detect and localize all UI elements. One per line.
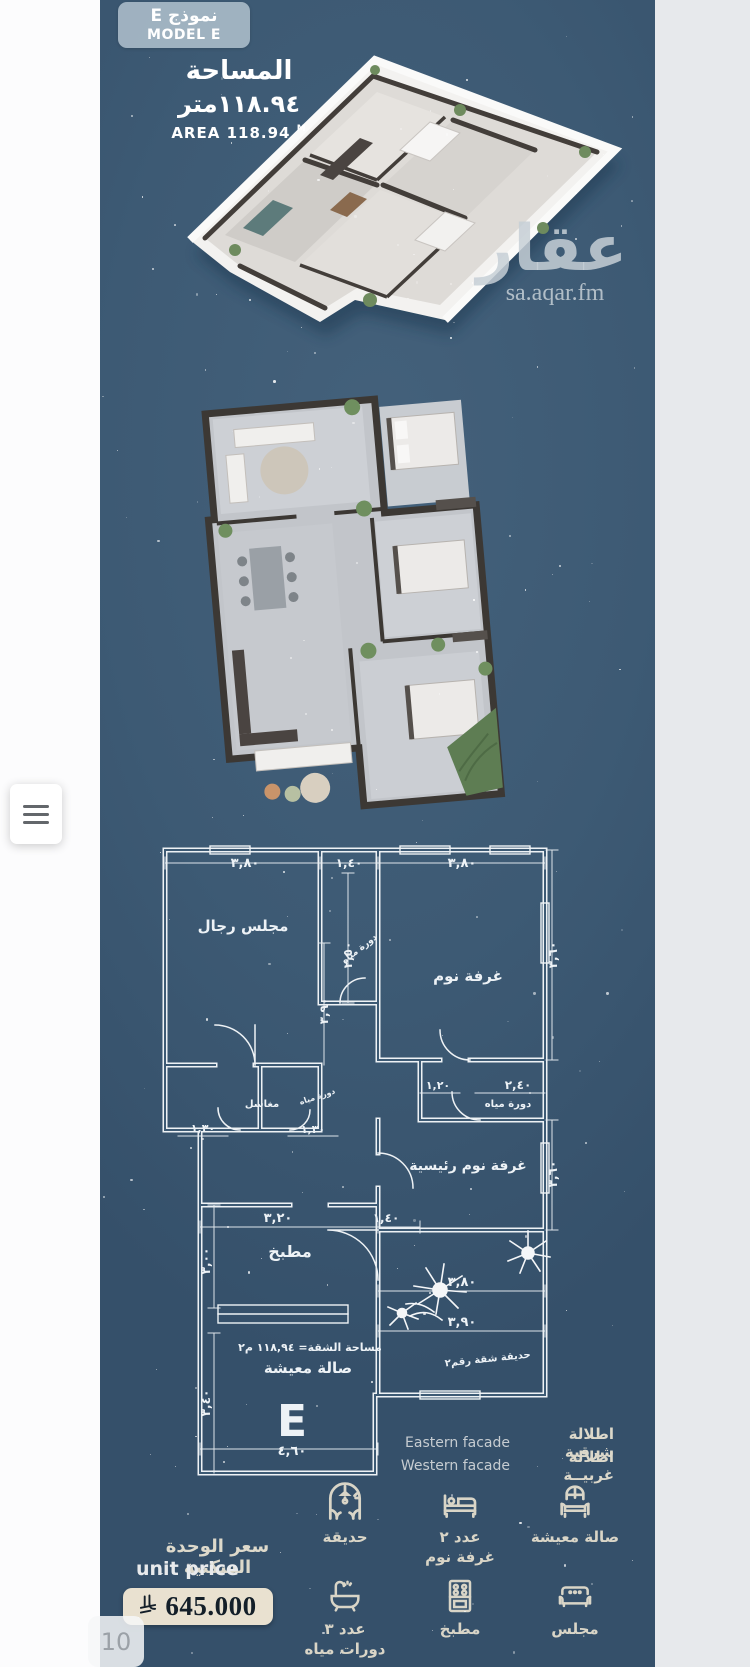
svg-text:٣,٦٠: ٣,٦٠ xyxy=(546,1161,560,1188)
area-label-ar: المساحة xyxy=(130,56,348,86)
svg-text:٣,٠٠: ٣,٠٠ xyxy=(199,1248,213,1275)
feature-label: مجلس xyxy=(517,1620,633,1640)
area-value-ar: ١١٨.٩٤متر xyxy=(130,90,348,118)
living-room-icon xyxy=(555,1509,595,1528)
bathtub-icon xyxy=(324,1601,366,1620)
facade-block: Eastern facade اطلالة شرقية Western faca… xyxy=(398,1431,614,1477)
svg-text:غرفة نوم رئيسية: غرفة نوم رئيسية xyxy=(409,1158,526,1174)
facade-eastern-en: Eastern facade xyxy=(405,1435,510,1451)
svg-text:مجلس رجال: مجلس رجال xyxy=(198,917,289,935)
svg-text:٣,٩٠: ٣,٩٠ xyxy=(317,998,331,1025)
feature-label: صالة معيشة xyxy=(517,1528,633,1548)
saudi-riyal-icon xyxy=(139,1594,158,1620)
svg-text:٣,٢٠: ٣,٢٠ xyxy=(264,1211,293,1226)
feature-kitchen: مطبخ xyxy=(402,1576,518,1640)
area-block: المساحة ١١٨.٩٤متر AREA 118.94 M xyxy=(130,56,348,142)
blueprint-plan: ٣,٨٠١,٤٠٣,٨٠٢,٥٠٣,٩٠٣,٦٠مجلس رجالدورة مي… xyxy=(140,843,570,1488)
menu-button[interactable] xyxy=(10,784,62,844)
svg-text:٣,٤٠: ٣,٤٠ xyxy=(199,1390,213,1417)
area-label-en: AREA 118.94 M xyxy=(130,124,348,142)
svg-text:حديقة شقة رقم٢: حديقة شقة رقم٢ xyxy=(444,1350,531,1370)
svg-text:غرفة نوم: غرفة نوم xyxy=(433,967,503,985)
svg-text:٤,٦٠: ٤,٦٠ xyxy=(278,1444,307,1459)
model-badge: نموذج E MODEL E xyxy=(118,2,250,48)
facade-western-en: Western facade xyxy=(401,1458,510,1474)
facade-western: Western facade اطلالة غربيــة xyxy=(398,1454,614,1477)
svg-text:٣,٨٠: ٣,٨٠ xyxy=(448,856,477,871)
garden-icon xyxy=(323,1509,367,1528)
svg-text:١,٢٠: ١,٢٠ xyxy=(426,1079,450,1092)
svg-text:١,٤٠: ١,٤٠ xyxy=(336,856,363,870)
feature-bathrooms: عدد ٣ دورات مياه xyxy=(287,1576,403,1659)
svg-text:٣,٨٠: ٣,٨٠ xyxy=(231,856,260,871)
unit-price-label-en: unit price xyxy=(136,1558,239,1580)
svg-text:١,٣٠: ١,٣٠ xyxy=(301,1123,325,1136)
hamburger-icon xyxy=(23,805,49,824)
feature-bedrooms: عدد ٢ غرفة نوم xyxy=(402,1484,518,1567)
feature-label: عدد ٢ xyxy=(402,1528,518,1548)
feature-majlis: مجلس xyxy=(517,1578,633,1640)
svg-text:١,٤٠: ١,٤٠ xyxy=(373,1211,400,1225)
svg-text:مغاسل: مغاسل xyxy=(245,1099,279,1110)
svg-text:١,٣٠: ١,٣٠ xyxy=(191,1122,215,1135)
stove-icon xyxy=(440,1601,480,1620)
feature-label: عدد ٣ xyxy=(287,1620,403,1640)
svg-text:E: E xyxy=(277,1396,307,1447)
image-counter-chip: 10 xyxy=(88,1616,144,1667)
area-unit: M xyxy=(297,124,307,134)
svg-text:٣,٩٠: ٣,٩٠ xyxy=(448,1315,477,1330)
majlis-sofa-icon xyxy=(554,1601,596,1620)
model-badge-ar: نموذج E xyxy=(151,7,218,27)
svg-text:مطبخ: مطبخ xyxy=(268,1242,312,1261)
svg-text:دورة مياه: دورة مياه xyxy=(298,1087,336,1107)
feature-label: مطبخ xyxy=(402,1620,518,1640)
svg-text:٢,٤٠: ٢,٤٠ xyxy=(505,1078,532,1092)
listing-poster: نموذج E MODEL E المساحة ١١٨.٩٤متر AREA 1… xyxy=(100,0,655,1667)
svg-text:٣,٨٠: ٣,٨٠ xyxy=(448,1275,477,1290)
image-counter: 10 xyxy=(101,1628,132,1656)
model-badge-en: MODEL E xyxy=(147,27,221,43)
svg-text:صالة معيشة: صالة معيشة xyxy=(264,1359,352,1377)
svg-text:٣,٦٠: ٣,٦٠ xyxy=(546,942,560,969)
right-margin xyxy=(655,0,750,1667)
svg-text:دورة مياه: دورة مياه xyxy=(485,1099,531,1110)
topdown-3d-floorplan xyxy=(195,390,510,835)
price-amount: 645.000 xyxy=(165,1591,256,1622)
facade-western-ar: اطلالة غربيــة xyxy=(518,1448,614,1484)
svg-text:مساحة الشقة= ١١٨,٩٤ م٢: مساحة الشقة= ١١٨,٩٤ م٢ xyxy=(238,1341,382,1354)
price-pill: 645.000 xyxy=(123,1588,273,1625)
feature-living-room: صالة معيشة xyxy=(517,1484,633,1548)
bed-icon xyxy=(439,1509,481,1528)
